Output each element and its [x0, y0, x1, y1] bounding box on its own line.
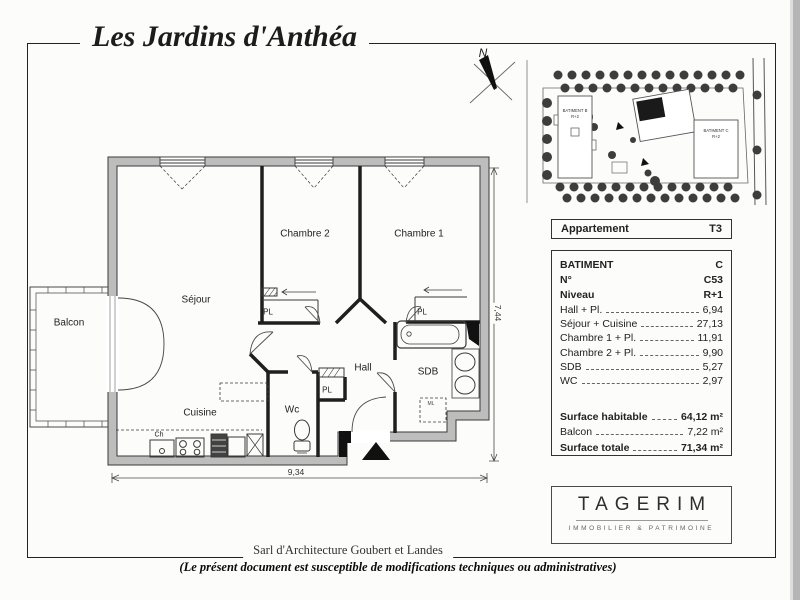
building-c-footprint: BATIMENT C R+2	[616, 89, 738, 178]
room-label-balcon: Balcon	[54, 318, 85, 329]
logo-tagline: IMMOBILIER & PATRIMOINE	[552, 525, 731, 532]
toilet-icon	[294, 420, 310, 453]
kitchen-fixtures	[116, 383, 268, 457]
apartment-label: Appartement	[561, 223, 629, 235]
apartment-outer-walls	[108, 157, 489, 465]
washbasin-icon	[455, 353, 475, 371]
room-label-chambre1: Chambre 1	[394, 229, 443, 240]
svg-text:R+2: R+2	[571, 114, 579, 119]
room-label-hall: Hall	[354, 363, 371, 374]
french-door-icon	[106, 296, 164, 392]
building-b-footprint: BATIMENT B R+2	[554, 96, 596, 178]
north-arrow-icon: N	[470, 46, 515, 103]
room-label-chambre2: Chambre 2	[280, 229, 329, 240]
table-row: Hall + Pl.6,94	[560, 303, 723, 317]
washbasin-icon	[455, 376, 475, 394]
entrance-triangle-icon	[362, 442, 390, 460]
logo-name: TAGERIM	[552, 494, 731, 516]
door-jamb	[466, 321, 479, 346]
table-row: Séjour + Cuisine27,13	[560, 317, 723, 331]
scan-edge	[793, 0, 800, 600]
balcony-railing	[30, 287, 108, 427]
closet-label: PL	[322, 386, 332, 395]
table-row: SDB5,27	[560, 360, 723, 374]
surface-table: BATIMENTC N°C53 NiveauR+1 Hall + Pl.6,94…	[551, 250, 732, 456]
svg-text:BATIMENT B: BATIMENT B	[563, 108, 588, 113]
table-row: N°C53	[560, 273, 723, 288]
closet-label: PL	[263, 308, 273, 317]
closet-label: PL	[417, 308, 427, 317]
logo-divider	[576, 520, 708, 521]
apartment-header: Appartement T3	[551, 219, 732, 239]
disclaimer-text: (Le présent document est susceptible de …	[179, 560, 616, 575]
room-label-sdb: SDB	[418, 367, 439, 378]
counter-island	[220, 383, 268, 401]
page-title: Les Jardins d'Anthéa	[80, 20, 369, 54]
svg-text:N: N	[479, 46, 488, 60]
height-dimension: 7,44	[493, 303, 503, 324]
table-row-total: Surface habitable64,12 m²	[560, 410, 723, 425]
architect-credit: Sarl d'Architecture Goubert et Landes	[243, 543, 453, 558]
oven-icon	[228, 437, 245, 457]
table-row-total: Balcon7,22 m²	[560, 425, 723, 440]
floor-plan-document: BATIMENT B R+2 BATIMENT C R+2 N Balcon	[0, 0, 800, 600]
table-row: NiveauR+1	[560, 288, 723, 303]
table-row: BATIMENTC	[560, 258, 723, 273]
washing-machine-label: ML	[428, 401, 435, 407]
room-label-wc: Wc	[285, 405, 299, 416]
room-label-sejour: Séjour	[182, 295, 211, 306]
water-heater-label: Ch	[155, 432, 164, 439]
apartment-type: T3	[709, 223, 722, 235]
table-row: Chambre 1 + Pl.11,91	[560, 331, 723, 345]
stove-icon	[176, 438, 204, 457]
tagerim-logo: TAGERIM IMMOBILIER & PATRIMOINE	[551, 486, 732, 544]
svg-text:BATIMENT C: BATIMENT C	[704, 128, 729, 133]
table-row: Chambre 2 + Pl.9,90	[560, 346, 723, 360]
svg-text:R+2: R+2	[712, 134, 720, 139]
room-label-cuisine: Cuisine	[183, 408, 216, 419]
table-row-total: Surface totale71,34 m²	[560, 441, 723, 456]
table-row: WC2,97	[560, 374, 723, 388]
width-dimension: 9,34	[286, 467, 307, 477]
site-plan: BATIMENT B R+2 BATIMENT C R+2	[527, 58, 766, 205]
